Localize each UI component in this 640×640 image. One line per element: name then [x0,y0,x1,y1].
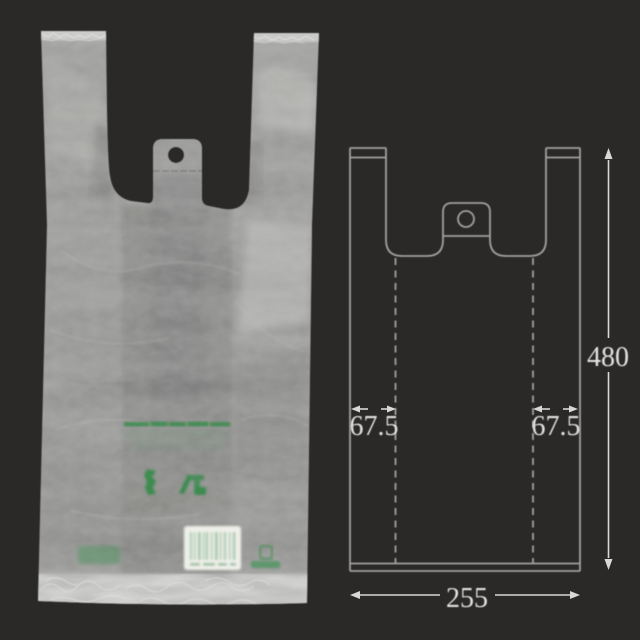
svg-text:67.5: 67.5 [350,411,399,442]
svg-text:255: 255 [446,583,488,614]
svg-text:67.5: 67.5 [532,411,581,442]
svg-text:480: 480 [587,342,629,373]
